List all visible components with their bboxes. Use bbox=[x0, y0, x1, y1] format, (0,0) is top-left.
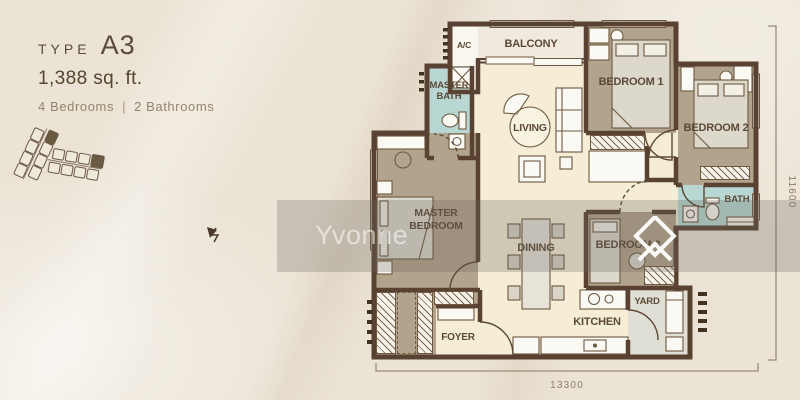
room-label-foyer: FOYER bbox=[441, 332, 475, 343]
watermark-text: Yvonne bbox=[315, 220, 408, 251]
unit-type: TYPE A3 bbox=[38, 30, 214, 61]
wardrobe-hatch bbox=[376, 292, 396, 354]
dimension-width: 13300 bbox=[550, 380, 584, 391]
closet-outline bbox=[397, 292, 416, 354]
north-arrow-icon bbox=[207, 227, 218, 242]
room-label-living: LIVING bbox=[513, 122, 547, 134]
wardrobe-hatch bbox=[434, 291, 474, 305]
property-portal-logo-icon bbox=[633, 216, 677, 262]
room-label-kitchen: KITCHEN bbox=[573, 316, 621, 328]
sliding-door bbox=[486, 57, 582, 66]
room-label-master-bath-1: MASTER bbox=[430, 80, 469, 91]
floorplan-page: A/C BALCONY MASTER BATH LIVING BEDROOM 1… bbox=[0, 0, 800, 400]
wardrobe-hatch bbox=[417, 292, 433, 354]
config-divider: | bbox=[122, 99, 126, 114]
type-value: A3 bbox=[101, 30, 136, 61]
wardrobe-hatch bbox=[700, 166, 750, 180]
room-label-ac: A/C bbox=[457, 40, 471, 50]
room-label-master-bath-2: BATH bbox=[437, 91, 462, 102]
unit-area: 1,388 sq. ft. bbox=[38, 68, 214, 90]
room-label-bedroom1: BEDROOM 1 bbox=[599, 76, 664, 88]
room-label-bedroom2: BEDROOM 2 bbox=[684, 122, 749, 134]
unit-info-header: TYPE A3 1,388 sq. ft. 4 Bedrooms|2 Bathr… bbox=[38, 30, 214, 114]
room-label-yard: YARD bbox=[634, 296, 660, 307]
bathroom-count: 2 Bathrooms bbox=[134, 99, 214, 114]
site-key-plan bbox=[13, 124, 104, 185]
type-label: TYPE bbox=[38, 41, 91, 57]
wardrobe-hatch bbox=[590, 135, 645, 150]
room-label-balcony: BALCONY bbox=[505, 38, 559, 50]
watermark-band: Yvonne bbox=[277, 200, 800, 272]
bedroom-count: 4 Bedrooms bbox=[38, 99, 114, 114]
unit-config: 4 Bedrooms|2 Bathrooms bbox=[38, 99, 214, 114]
